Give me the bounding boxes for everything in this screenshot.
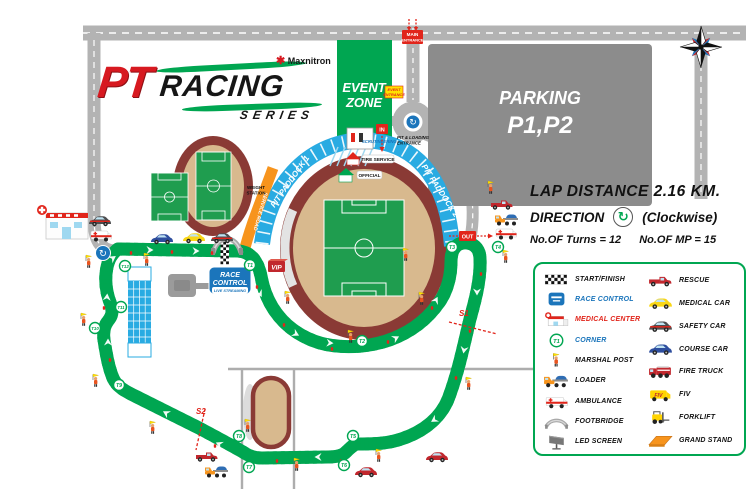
corner-marker-T3: T3 xyxy=(447,242,458,253)
svg-text:S1: S1 xyxy=(459,309,469,318)
legend-item-rescue: RESCUE xyxy=(647,269,740,292)
maxnitron-badge: ✱ Maxnitron xyxy=(276,54,331,67)
parking-label: PARKING xyxy=(499,88,581,108)
svg-text:S2: S2 xyxy=(196,407,206,416)
weight-station-label: WEIGHT xyxy=(247,185,265,190)
svg-text:T1: T1 xyxy=(247,263,253,269)
rescue-icon xyxy=(647,272,674,289)
fire-point-icon xyxy=(480,272,482,275)
marshal-post-count: No.OF MP = 15 xyxy=(639,234,716,246)
legend-item-firetruck: FIRE TRUCK xyxy=(647,361,740,384)
direction-label: DIRECTION xyxy=(530,210,604,225)
event-entrance-sign: EVENT ENTRANCE xyxy=(383,86,405,98)
fire-point-icon xyxy=(331,347,333,350)
coursecar-icon xyxy=(647,341,674,358)
fire-point-icon xyxy=(387,340,389,343)
safetycar-icon xyxy=(647,318,674,335)
marshal-post-icon xyxy=(86,255,92,268)
fire-point-icon xyxy=(431,306,433,309)
svg-text:T2: T2 xyxy=(359,339,365,345)
marshal-icon xyxy=(543,352,570,369)
svg-text:ENTRANCE: ENTRANCE xyxy=(397,141,421,146)
svg-text:ZONE: ZONE xyxy=(345,95,382,110)
forklift-icon xyxy=(647,409,674,426)
marshal-post-icon xyxy=(93,374,99,387)
redcar-icon xyxy=(355,467,377,477)
svg-text:T4: T4 xyxy=(495,245,501,251)
svg-text:T12: T12 xyxy=(121,264,129,269)
legend-item-ledscreen: LED SCREEN xyxy=(543,432,647,452)
ambulance-icon xyxy=(543,393,570,410)
corner-marker-T8: T8 xyxy=(234,431,245,442)
legend-item-marshal: MARSHAL POST xyxy=(543,350,647,370)
medicalcar-icon xyxy=(183,233,205,243)
race-control: RACE CONTROL LIVE STREAMING xyxy=(168,267,251,297)
legend-item-safetycar: SAFETY CAR xyxy=(647,315,740,338)
marshal-post-icon xyxy=(503,250,509,263)
svg-text:OUT: OUT xyxy=(462,234,474,240)
legend-item-footbridge: FOOTBRIDGE xyxy=(543,411,647,431)
legend-right-column: RESCUE MEDICAL CAR SAFETY CAR COURSE CAR… xyxy=(647,269,740,452)
live-streaming-label: LIVE STREAMING xyxy=(214,289,246,293)
race-control-label: RACE xyxy=(220,272,240,279)
fire-point-icon xyxy=(214,444,216,447)
racecontrol-icon xyxy=(543,291,570,308)
track-info: LAP DISTANCE 2.16 KM. DIRECTION ↻ (Clock… xyxy=(530,183,748,246)
svg-text:T11: T11 xyxy=(117,305,125,310)
svg-text:T5: T5 xyxy=(350,434,356,440)
corner-marker-T4: T4 xyxy=(493,242,504,253)
svg-text:↻: ↻ xyxy=(99,248,107,259)
corner-marker-T2: T2 xyxy=(357,336,368,347)
main-entrance-sign: MAIN ENTRANCE xyxy=(401,19,424,44)
clockwise-icon: ↻ xyxy=(613,207,633,227)
fire-point-icon xyxy=(130,251,132,254)
coursecar-icon xyxy=(151,234,173,244)
rescue-icon xyxy=(196,453,218,462)
fire-point-icon xyxy=(109,358,111,361)
corner-marker-T6: T6 xyxy=(339,460,350,471)
footbridge-icon xyxy=(543,413,570,430)
legend-item-ambulance: AMBULANCE xyxy=(543,391,647,411)
legend-item-racecontrol: RACE CONTROL xyxy=(543,289,647,309)
legend-item-corner: T1 CORNER xyxy=(543,330,647,350)
corner-marker-T11: T11 xyxy=(116,302,127,313)
legend-item-fiv: FIV FIV xyxy=(647,383,740,406)
fire-point-icon xyxy=(211,251,213,254)
corner-marker-T9: T9 xyxy=(114,380,125,391)
startfinish-icon xyxy=(543,271,570,288)
fire-point-icon xyxy=(283,323,285,326)
lap-distance: LAP DISTANCE 2.16 KM. xyxy=(530,183,748,201)
legend-item-medcenter: MEDICAL CENTER xyxy=(543,310,647,330)
marshal-post-icon xyxy=(81,313,87,326)
grandstand-icon xyxy=(647,432,674,449)
loader-icon xyxy=(205,467,228,478)
marshal-post-icon xyxy=(285,291,291,304)
medicalcar-icon xyxy=(647,295,674,312)
logo-racing: RACING xyxy=(158,70,286,104)
circuit-map-page: EVENT ZONE PARKING P1,P2 xyxy=(0,0,754,500)
legend-item-startfinish: START/FINISH xyxy=(543,269,647,289)
svg-text:T6: T6 xyxy=(341,463,347,469)
legend-item-coursecar: COURSE CAR xyxy=(647,338,740,361)
svg-text:T8: T8 xyxy=(236,434,242,440)
corner-marker-T5: T5 xyxy=(348,431,359,442)
fiv-icon: FIV xyxy=(647,386,674,403)
legend-item-forklift: FORKLIFT xyxy=(647,406,740,429)
firetruck-icon xyxy=(647,363,674,380)
svg-text:PIT & LOADING: PIT & LOADING xyxy=(397,135,430,140)
official-label: OFFICIAL xyxy=(358,173,380,179)
ambulance-icon xyxy=(496,229,517,240)
corner-marker-T12: T12 xyxy=(120,261,131,272)
marshal-post-icon xyxy=(376,449,382,462)
corner-marker-T1: T1 xyxy=(245,260,256,271)
legend-item-grandstand: GRAND STAND xyxy=(647,429,740,452)
loader-icon xyxy=(543,372,570,389)
fire-point-icon xyxy=(171,250,173,253)
svg-text:IN: IN xyxy=(379,128,385,134)
legend-left-column: START/FINISH RACE CONTROL MEDICAL CENTER… xyxy=(543,269,647,452)
legend-item-loader: LOADER xyxy=(543,371,647,391)
marshal-post-icon xyxy=(466,377,472,390)
fire-point-icon xyxy=(256,285,258,288)
tire-service-label: TIRE SERVICE xyxy=(361,157,395,163)
direction-value: (Clockwise) xyxy=(642,210,717,225)
legend: START/FINISH RACE CONTROL MEDICAL CENTER… xyxy=(533,262,746,456)
redcar-icon xyxy=(426,452,448,462)
scrutineering-label: SCRUTINEERING xyxy=(362,139,397,144)
svg-text:T10: T10 xyxy=(91,326,99,331)
corner-icon: T1 xyxy=(543,332,570,349)
svg-text:T9: T9 xyxy=(116,383,122,389)
svg-text:T1: T1 xyxy=(553,338,560,344)
fire-point-icon xyxy=(455,376,457,379)
maxnitron-flower-icon: ✱ xyxy=(276,55,285,67)
turns-count: No.OF Turns = 12 xyxy=(530,234,621,246)
ledscreen-icon xyxy=(543,433,570,450)
vip-stand: VIP xyxy=(268,259,288,272)
pt-racing-logo: PT RACING SERIES ✱ Maxnitron xyxy=(98,56,338,118)
svg-text:CONTROL: CONTROL xyxy=(213,280,248,287)
corner-marker-T7: T7 xyxy=(244,462,255,473)
medical-center xyxy=(37,205,89,240)
loader-icon xyxy=(495,215,518,226)
legend-item-medicalcar: MEDICAL CAR xyxy=(647,292,740,315)
marshal-post-icon xyxy=(150,421,156,434)
vip-label: VIP xyxy=(271,265,282,272)
fire-point-icon xyxy=(276,459,278,462)
fire-point-icon xyxy=(469,329,471,332)
svg-text:ENTRANCE: ENTRANCE xyxy=(401,38,424,43)
svg-text:STATION: STATION xyxy=(246,191,265,196)
logo-pt: PT xyxy=(95,58,152,108)
corner-marker-T10: T10 xyxy=(90,323,101,334)
svg-text:MAIN: MAIN xyxy=(407,32,419,37)
fire-point-icon xyxy=(103,306,105,309)
svg-text:↻: ↻ xyxy=(409,118,417,128)
grandstand xyxy=(128,267,151,357)
svg-text:T3: T3 xyxy=(449,245,455,251)
event-zone-label: EVENT xyxy=(342,80,386,95)
logo-series: SERIES xyxy=(239,108,315,122)
medcenter-icon xyxy=(543,311,570,328)
svg-text:P1,P2: P1,P2 xyxy=(507,112,573,139)
small-oval xyxy=(253,378,289,447)
svg-text:ENTRANCE: ENTRANCE xyxy=(383,92,405,97)
